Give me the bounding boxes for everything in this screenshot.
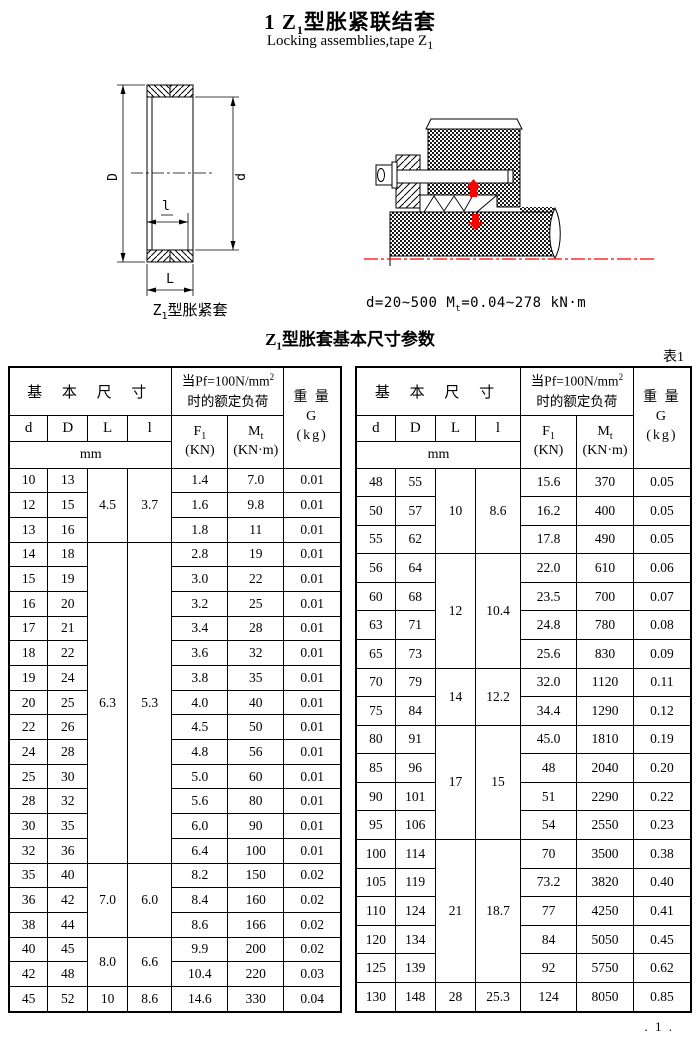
cell-G: 0.04 — [284, 986, 341, 1012]
table-row: 17213.4280.01 — [9, 616, 341, 641]
cell-F1: 92 — [520, 954, 576, 983]
cell-Mt: 32 — [228, 641, 284, 666]
cell-d: 38 — [9, 912, 48, 937]
cell-Mt: 700 — [577, 582, 634, 611]
cell-D: 68 — [395, 582, 435, 611]
cell-d: 14 — [9, 542, 48, 567]
cell-D: 26 — [48, 715, 88, 740]
cell-d: 35 — [9, 863, 48, 888]
cell-d: 24 — [9, 740, 48, 765]
table-row: 4552108.614.63300.04 — [9, 986, 341, 1012]
table-row: 38448.61660.02 — [9, 912, 341, 937]
page-number: . 1 . — [645, 1019, 675, 1035]
cell-D: 134 — [395, 925, 435, 954]
table-row: 14186.35.32.8190.01 — [9, 542, 341, 567]
cell-d: 40 — [9, 937, 48, 962]
cell-F1: 70 — [520, 840, 576, 869]
table-row: 16203.2250.01 — [9, 591, 341, 616]
cell-G: 0.06 — [633, 554, 691, 583]
left-figure-caption: Z1型胀紧套 — [105, 299, 275, 322]
cell-l: 18.7 — [476, 840, 521, 983]
cell-F1: 9.9 — [172, 937, 228, 962]
cell-d: 17 — [9, 616, 48, 641]
cell-D: 48 — [48, 962, 88, 987]
cell-d: 50 — [356, 497, 395, 526]
cell-G: 0.19 — [633, 725, 691, 754]
cell-D: 148 — [395, 982, 435, 1012]
cell-d: 18 — [9, 641, 48, 666]
cell-D: 71 — [395, 611, 435, 640]
cell-d: 30 — [9, 814, 48, 839]
catalog-page: 1 Z1型胀紧联结套 Locking assemblies,tape Z1 — [0, 0, 700, 1044]
cell-D: 28 — [48, 740, 88, 765]
cell-d: 60 — [356, 582, 395, 611]
cell-Mt: 150 — [228, 863, 284, 888]
cell-L: 28 — [435, 982, 475, 1012]
cell-F1: 4.5 — [172, 715, 228, 740]
cell-G: 0.12 — [633, 697, 691, 726]
cell-L: 10 — [88, 986, 128, 1012]
cell-D: 91 — [395, 725, 435, 754]
cell-D: 57 — [395, 497, 435, 526]
table-row: 12151.69.80.01 — [9, 493, 341, 518]
cell-L: 8.0 — [88, 937, 128, 986]
cell-F1: 4.8 — [172, 740, 228, 765]
cell-G: 0.01 — [284, 641, 341, 666]
cell-Mt: 1120 — [577, 668, 634, 697]
cell-F1: 3.2 — [172, 591, 228, 616]
cell-Mt: 9.8 — [228, 493, 284, 518]
table-row: 28325.6800.01 — [9, 789, 341, 814]
cell-G: 0.01 — [284, 715, 341, 740]
table-row: 70791412.232.011200.11 — [356, 668, 691, 697]
cell-D: 64 — [395, 554, 435, 583]
cell-F1: 10.4 — [172, 962, 228, 987]
cell-F1: 15.6 — [520, 468, 576, 497]
cell-Mt: 2040 — [577, 754, 634, 783]
cell-G: 0.01 — [284, 666, 341, 691]
cell-F1: 3.4 — [172, 616, 228, 641]
cell-l: 6.0 — [128, 863, 172, 937]
cell-G: 0.22 — [633, 782, 691, 811]
table-row: 19243.8350.01 — [9, 666, 341, 691]
cell-d: 13 — [9, 517, 48, 542]
cell-F1: 24.8 — [520, 611, 576, 640]
col-header-D: D — [395, 415, 435, 441]
cell-d: 65 — [356, 639, 395, 668]
cell-d: 70 — [356, 668, 395, 697]
cell-F1: 23.5 — [520, 582, 576, 611]
cell-d: 36 — [9, 888, 48, 913]
cell-D: 62 — [395, 525, 435, 554]
col-header-D: D — [48, 415, 88, 441]
cell-F1: 32.0 — [520, 668, 576, 697]
cell-D: 106 — [395, 811, 435, 840]
col-header-l: l — [476, 415, 521, 441]
cell-d: 80 — [356, 725, 395, 754]
cell-d: 120 — [356, 925, 395, 954]
cell-d: 32 — [9, 838, 48, 863]
cell-Mt: 50 — [228, 715, 284, 740]
right-figure-caption: d=20~500 Mt=0.04~278 kN·m — [366, 295, 686, 314]
cell-D: 44 — [48, 912, 88, 937]
table-row: 36428.41600.02 — [9, 888, 341, 913]
rated-load-header: 当Pf=100N/mm2 时的额定负荷 — [520, 367, 633, 415]
cell-G: 0.41 — [633, 897, 691, 926]
cell-F1: 3.6 — [172, 641, 228, 666]
dimension-table-left: 基 本 尺 寸 当Pf=100N/mm2 时的额定负荷 重 量G(kg) d D… — [8, 366, 342, 1013]
table-row: 35407.06.08.21500.02 — [9, 863, 341, 888]
dim-label-l: l — [162, 199, 170, 214]
cell-D: 15 — [48, 493, 88, 518]
cell-d: 15 — [9, 567, 48, 592]
cell-Mt: 100 — [228, 838, 284, 863]
cell-l: 12.2 — [476, 668, 521, 725]
table-row: 10134.53.71.47.00.01 — [9, 468, 341, 493]
col-header-Mt: Mt(KN·m) — [228, 415, 284, 468]
cell-D: 101 — [395, 782, 435, 811]
table-row: 657325.68300.09 — [356, 639, 691, 668]
cell-F1: 45.0 — [520, 725, 576, 754]
cell-G: 0.01 — [284, 542, 341, 567]
cell-l: 8.6 — [476, 468, 521, 554]
table-title: Z1型胀套基本尺寸参数 — [0, 325, 700, 352]
dim-label-D: D — [106, 173, 121, 181]
cell-d: 63 — [356, 611, 395, 640]
cell-F1: 8.2 — [172, 863, 228, 888]
cell-l: 6.6 — [128, 937, 172, 986]
cell-d: 28 — [9, 789, 48, 814]
unit-header: mm — [9, 441, 172, 468]
cell-G: 0.38 — [633, 840, 691, 869]
cell-F1: 8.6 — [172, 912, 228, 937]
cell-d: 16 — [9, 591, 48, 616]
cell-F1: 48 — [520, 754, 576, 783]
cell-D: 84 — [395, 697, 435, 726]
page-subtitle: Locking assemblies,tape Z1 — [0, 33, 700, 53]
cell-G: 0.02 — [284, 888, 341, 913]
cell-G: 0.01 — [284, 591, 341, 616]
col-header-Mt: Mt(KN·m) — [577, 415, 634, 468]
cell-G: 0.03 — [284, 962, 341, 987]
cell-Mt: 1290 — [577, 697, 634, 726]
basic-dims-header: 基 本 尺 寸 — [9, 367, 172, 415]
cell-F1: 77 — [520, 897, 576, 926]
cell-D: 114 — [395, 840, 435, 869]
cell-F1: 1.8 — [172, 517, 228, 542]
cell-Mt: 3820 — [577, 868, 634, 897]
dim-label-d: d — [234, 173, 249, 181]
cell-F1: 25.6 — [520, 639, 576, 668]
cell-Mt: 8050 — [577, 982, 634, 1012]
cell-G: 0.01 — [284, 740, 341, 765]
cell-D: 35 — [48, 814, 88, 839]
cell-F1: 73.2 — [520, 868, 576, 897]
cell-D: 40 — [48, 863, 88, 888]
cell-G: 0.01 — [284, 690, 341, 715]
cell-G: 0.02 — [284, 863, 341, 888]
cell-L: 17 — [435, 725, 475, 839]
cell-d: 85 — [356, 754, 395, 783]
cell-D: 42 — [48, 888, 88, 913]
table-row: 637124.87800.08 — [356, 611, 691, 640]
cell-G: 0.01 — [284, 468, 341, 493]
table-row: 10511973.238200.40 — [356, 868, 691, 897]
cell-F1: 6.4 — [172, 838, 228, 863]
cell-d: 42 — [9, 962, 48, 987]
cell-D: 55 — [395, 468, 435, 497]
cell-Mt: 166 — [228, 912, 284, 937]
cell-Mt: 5050 — [577, 925, 634, 954]
table-row: 556217.84900.05 — [356, 525, 691, 554]
table-row: 951065425500.23 — [356, 811, 691, 840]
col-header-d: d — [356, 415, 395, 441]
cell-L: 21 — [435, 840, 475, 983]
cell-F1: 3.8 — [172, 666, 228, 691]
cell-d: 48 — [356, 468, 395, 497]
cell-G: 0.01 — [284, 789, 341, 814]
cell-l: 10.4 — [476, 554, 521, 668]
cell-d: 56 — [356, 554, 395, 583]
cell-d: 90 — [356, 782, 395, 811]
cell-D: 30 — [48, 764, 88, 789]
cell-F1: 3.0 — [172, 567, 228, 592]
cell-Mt: 2290 — [577, 782, 634, 811]
table-row: 85964820400.20 — [356, 754, 691, 783]
cell-G: 0.05 — [633, 468, 691, 497]
unit-header: mm — [356, 441, 520, 468]
cell-Mt: 330 — [228, 986, 284, 1012]
cell-Mt: 200 — [228, 937, 284, 962]
col-header-l: l — [128, 415, 172, 441]
cell-d: 12 — [9, 493, 48, 518]
cell-Mt: 35 — [228, 666, 284, 691]
cell-F1: 17.8 — [520, 525, 576, 554]
cell-Mt: 400 — [577, 497, 634, 526]
cell-F1: 8.4 — [172, 888, 228, 913]
cell-D: 13 — [48, 468, 88, 493]
cell-Mt: 5750 — [577, 954, 634, 983]
basic-dims-header: 基 本 尺 寸 — [356, 367, 520, 415]
table-row: 22264.5500.01 — [9, 715, 341, 740]
cell-Mt: 80 — [228, 789, 284, 814]
cell-Mt: 220 — [228, 962, 284, 987]
cell-F1: 14.6 — [172, 986, 228, 1012]
cell-D: 20 — [48, 591, 88, 616]
cell-Mt: 25 — [228, 591, 284, 616]
cell-F1: 5.6 — [172, 789, 228, 814]
cell-F1: 51 — [520, 782, 576, 811]
cell-D: 96 — [395, 754, 435, 783]
cell-Mt: 780 — [577, 611, 634, 640]
cell-G: 0.23 — [633, 811, 691, 840]
cell-d: 45 — [9, 986, 48, 1012]
cell-Mt: 11 — [228, 517, 284, 542]
table-row: 606823.57000.07 — [356, 582, 691, 611]
cell-Mt: 1810 — [577, 725, 634, 754]
cell-Mt: 60 — [228, 764, 284, 789]
cell-L: 7.0 — [88, 863, 128, 937]
cell-G: 0.45 — [633, 925, 691, 954]
col-header-L: L — [435, 415, 475, 441]
table-row: 1301482825.312480500.85 — [356, 982, 691, 1012]
table-row: 1101247742500.41 — [356, 897, 691, 926]
cell-l: 25.3 — [476, 982, 521, 1012]
cell-D: 32 — [48, 789, 88, 814]
table-row: 13161.8110.01 — [9, 517, 341, 542]
cell-Mt: 40 — [228, 690, 284, 715]
table-row: 24284.8560.01 — [9, 740, 341, 765]
cell-D: 139 — [395, 954, 435, 983]
cell-F1: 22.0 — [520, 554, 576, 583]
cell-F1: 6.0 — [172, 814, 228, 839]
cell-D: 73 — [395, 639, 435, 668]
cell-l: 15 — [476, 725, 521, 839]
cell-F1: 1.6 — [172, 493, 228, 518]
table-row: 20254.0400.01 — [9, 690, 341, 715]
cell-G: 0.11 — [633, 668, 691, 697]
cell-F1: 16.2 — [520, 497, 576, 526]
sleeve-section-figure: D d l L — [55, 70, 335, 300]
cell-D: 79 — [395, 668, 435, 697]
cell-L: 6.3 — [88, 542, 128, 863]
table-row: 901015122900.22 — [356, 782, 691, 811]
table-row: 40458.06.69.92000.02 — [9, 937, 341, 962]
cell-G: 0.01 — [284, 838, 341, 863]
table-row: 1251399257500.62 — [356, 954, 691, 983]
cell-D: 16 — [48, 517, 88, 542]
cell-D: 52 — [48, 986, 88, 1012]
cell-D: 25 — [48, 690, 88, 715]
cell-L: 4.5 — [88, 468, 128, 542]
cell-F1: 1.4 — [172, 468, 228, 493]
dim-label-L: L — [166, 272, 174, 287]
cell-G: 0.08 — [633, 611, 691, 640]
table-row: 1201348450500.45 — [356, 925, 691, 954]
cell-G: 0.01 — [284, 567, 341, 592]
cell-D: 119 — [395, 868, 435, 897]
cell-D: 21 — [48, 616, 88, 641]
cell-G: 0.09 — [633, 639, 691, 668]
table-row: 56641210.422.06100.06 — [356, 554, 691, 583]
table-row: 8091171545.018100.19 — [356, 725, 691, 754]
cell-G: 0.01 — [284, 517, 341, 542]
cell-Mt: 22 — [228, 567, 284, 592]
cell-d: 100 — [356, 840, 395, 869]
table-row: 18223.6320.01 — [9, 641, 341, 666]
cell-Mt: 370 — [577, 468, 634, 497]
cell-Mt: 160 — [228, 888, 284, 913]
table-row: 505716.24000.05 — [356, 497, 691, 526]
cell-d: 125 — [356, 954, 395, 983]
table-row: 758434.412900.12 — [356, 697, 691, 726]
cell-Mt: 490 — [577, 525, 634, 554]
col-header-F1: F1(KN) — [520, 415, 576, 468]
cell-G: 0.40 — [633, 868, 691, 897]
cell-D: 22 — [48, 641, 88, 666]
cell-Mt: 2550 — [577, 811, 634, 840]
cell-G: 0.01 — [284, 764, 341, 789]
cell-G: 0.02 — [284, 912, 341, 937]
col-header-d: d — [9, 415, 48, 441]
cell-d: 130 — [356, 982, 395, 1012]
table-row: 1001142118.77035000.38 — [356, 840, 691, 869]
cell-D: 36 — [48, 838, 88, 863]
weight-header: 重 量G(kg) — [633, 367, 691, 468]
cell-Mt: 3500 — [577, 840, 634, 869]
table-row: 32366.41000.01 — [9, 838, 341, 863]
col-header-F1: F1(KN) — [172, 415, 228, 468]
table-row: 15193.0220.01 — [9, 567, 341, 592]
cell-G: 0.01 — [284, 616, 341, 641]
cell-F1: 124 — [520, 982, 576, 1012]
cell-G: 0.02 — [284, 937, 341, 962]
cell-D: 24 — [48, 666, 88, 691]
cell-d: 105 — [356, 868, 395, 897]
table-row: 424810.42200.03 — [9, 962, 341, 987]
cell-G: 0.05 — [633, 497, 691, 526]
cell-d: 22 — [9, 715, 48, 740]
cell-Mt: 830 — [577, 639, 634, 668]
cell-L: 14 — [435, 668, 475, 725]
cell-d: 95 — [356, 811, 395, 840]
cell-l: 8.6 — [128, 986, 172, 1012]
cell-Mt: 19 — [228, 542, 284, 567]
cell-D: 19 — [48, 567, 88, 592]
col-header-L: L — [88, 415, 128, 441]
cell-G: 0.01 — [284, 493, 341, 518]
assembly-section-figure — [362, 98, 657, 273]
cell-Mt: 56 — [228, 740, 284, 765]
cell-G: 0.07 — [633, 582, 691, 611]
cell-Mt: 90 — [228, 814, 284, 839]
cell-d: 19 — [9, 666, 48, 691]
cell-d: 55 — [356, 525, 395, 554]
cell-d: 75 — [356, 697, 395, 726]
cell-l: 3.7 — [128, 468, 172, 542]
dimension-table-right: 基 本 尺 寸 当Pf=100N/mm2 时的额定负荷 重 量G(kg) d D… — [355, 366, 692, 1013]
table-row: 4855108.615.63700.05 — [356, 468, 691, 497]
cell-G: 0.01 — [284, 814, 341, 839]
cell-F1: 2.8 — [172, 542, 228, 567]
weight-header: 重 量G(kg) — [284, 367, 341, 468]
cell-G: 0.05 — [633, 525, 691, 554]
table-number-tag: 表1 — [663, 346, 684, 366]
cell-d: 110 — [356, 897, 395, 926]
cell-Mt: 7.0 — [228, 468, 284, 493]
cell-G: 0.85 — [633, 982, 691, 1012]
cell-L: 10 — [435, 468, 475, 554]
cell-F1: 4.0 — [172, 690, 228, 715]
cell-Mt: 610 — [577, 554, 634, 583]
cell-l: 5.3 — [128, 542, 172, 863]
cell-G: 0.62 — [633, 954, 691, 983]
cell-D: 124 — [395, 897, 435, 926]
cell-D: 18 — [48, 542, 88, 567]
cell-F1: 84 — [520, 925, 576, 954]
cell-F1: 34.4 — [520, 697, 576, 726]
table-row: 25305.0600.01 — [9, 764, 341, 789]
cell-F1: 54 — [520, 811, 576, 840]
table-row: 30356.0900.01 — [9, 814, 341, 839]
cell-d: 20 — [9, 690, 48, 715]
rated-load-header: 当Pf=100N/mm2 时的额定负荷 — [172, 367, 284, 415]
cell-d: 25 — [9, 764, 48, 789]
cell-L: 12 — [435, 554, 475, 668]
cell-G: 0.20 — [633, 754, 691, 783]
cell-F1: 5.0 — [172, 764, 228, 789]
cell-Mt: 4250 — [577, 897, 634, 926]
